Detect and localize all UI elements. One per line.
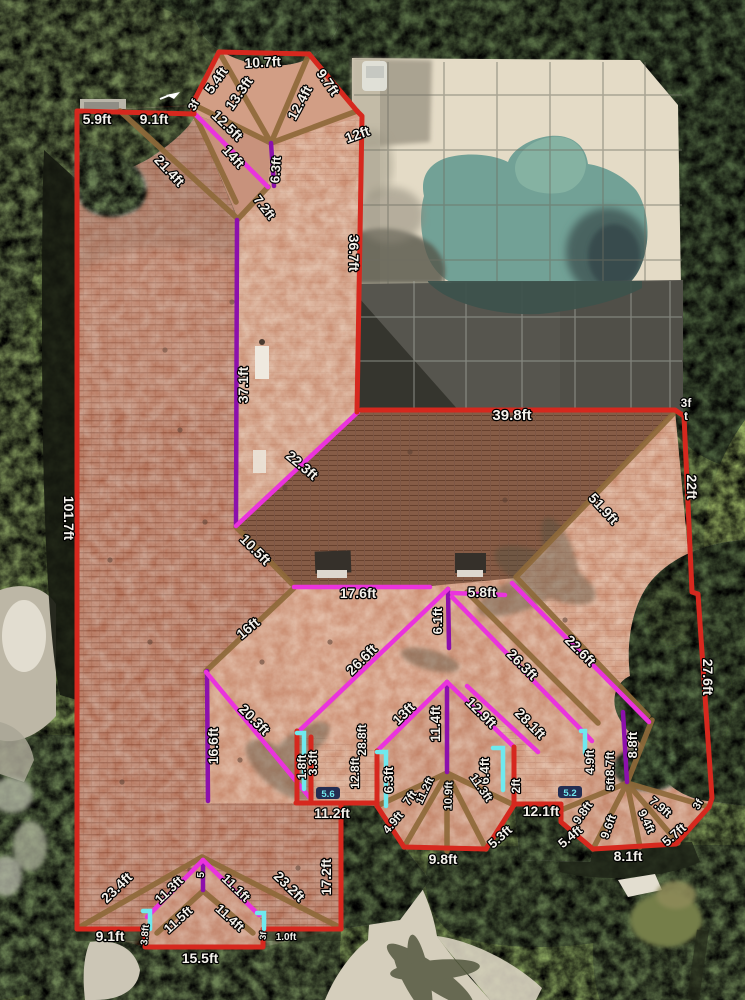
svg-text:11.4ft: 11.4ft — [427, 706, 443, 742]
svg-text:10.7ft: 10.7ft — [244, 53, 282, 71]
svg-text:8.7ft: 8.7ft — [603, 752, 617, 777]
svg-text:3f: 3f — [681, 396, 693, 410]
svg-text:5ft: 5ft — [605, 777, 617, 791]
svg-text:8.1ft: 8.1ft — [614, 848, 643, 864]
svg-text:15.5ft: 15.5ft — [182, 950, 219, 966]
svg-text:5.9ft: 5.9ft — [83, 111, 112, 127]
svg-text:17.2ft: 17.2ft — [318, 858, 334, 895]
svg-text:2ft: 2ft — [509, 779, 523, 794]
svg-text:t: t — [684, 409, 688, 423]
svg-text:5: 5 — [196, 872, 207, 878]
svg-text:6.1ft: 6.1ft — [430, 607, 445, 634]
svg-text:9.1ft: 9.1ft — [96, 928, 125, 944]
svg-text:3.8ft: 3.8ft — [139, 923, 152, 945]
svg-text:6.3ft: 6.3ft — [381, 766, 396, 793]
svg-text:9.8ft: 9.8ft — [429, 851, 458, 867]
svg-text:5.8ft: 5.8ft — [468, 584, 497, 600]
svg-text:16.6ft: 16.6ft — [205, 727, 221, 764]
svg-text:22ft: 22ft — [684, 475, 700, 500]
svg-text:1.0ft: 1.0ft — [276, 932, 297, 943]
svg-text:6.3ft: 6.3ft — [267, 155, 284, 183]
svg-text:36.7ft: 36.7ft — [346, 235, 362, 272]
svg-text:37.1ft: 37.1ft — [235, 366, 251, 403]
svg-text:12.1ft: 12.1ft — [523, 803, 560, 819]
svg-text:5.6: 5.6 — [321, 789, 334, 800]
svg-text:3.3ft: 3.3ft — [306, 751, 320, 776]
svg-text:10.9ft: 10.9ft — [443, 781, 456, 810]
svg-text:12.8ft: 12.8ft — [348, 757, 362, 788]
svg-text:39.8ft: 39.8ft — [492, 407, 531, 424]
svg-text:4.9ft: 4.9ft — [583, 750, 597, 775]
svg-text:11.2ft: 11.2ft — [314, 805, 350, 821]
svg-text:8.8ft: 8.8ft — [625, 731, 640, 758]
svg-text:5.2: 5.2 — [563, 788, 576, 799]
svg-text:27.6ft: 27.6ft — [700, 659, 716, 696]
svg-text:17.6ft: 17.6ft — [340, 585, 377, 601]
svg-text:28.8ft: 28.8ft — [355, 724, 369, 755]
svg-text:9.1ft: 9.1ft — [140, 111, 169, 127]
svg-text:101.7ft: 101.7ft — [61, 496, 77, 541]
